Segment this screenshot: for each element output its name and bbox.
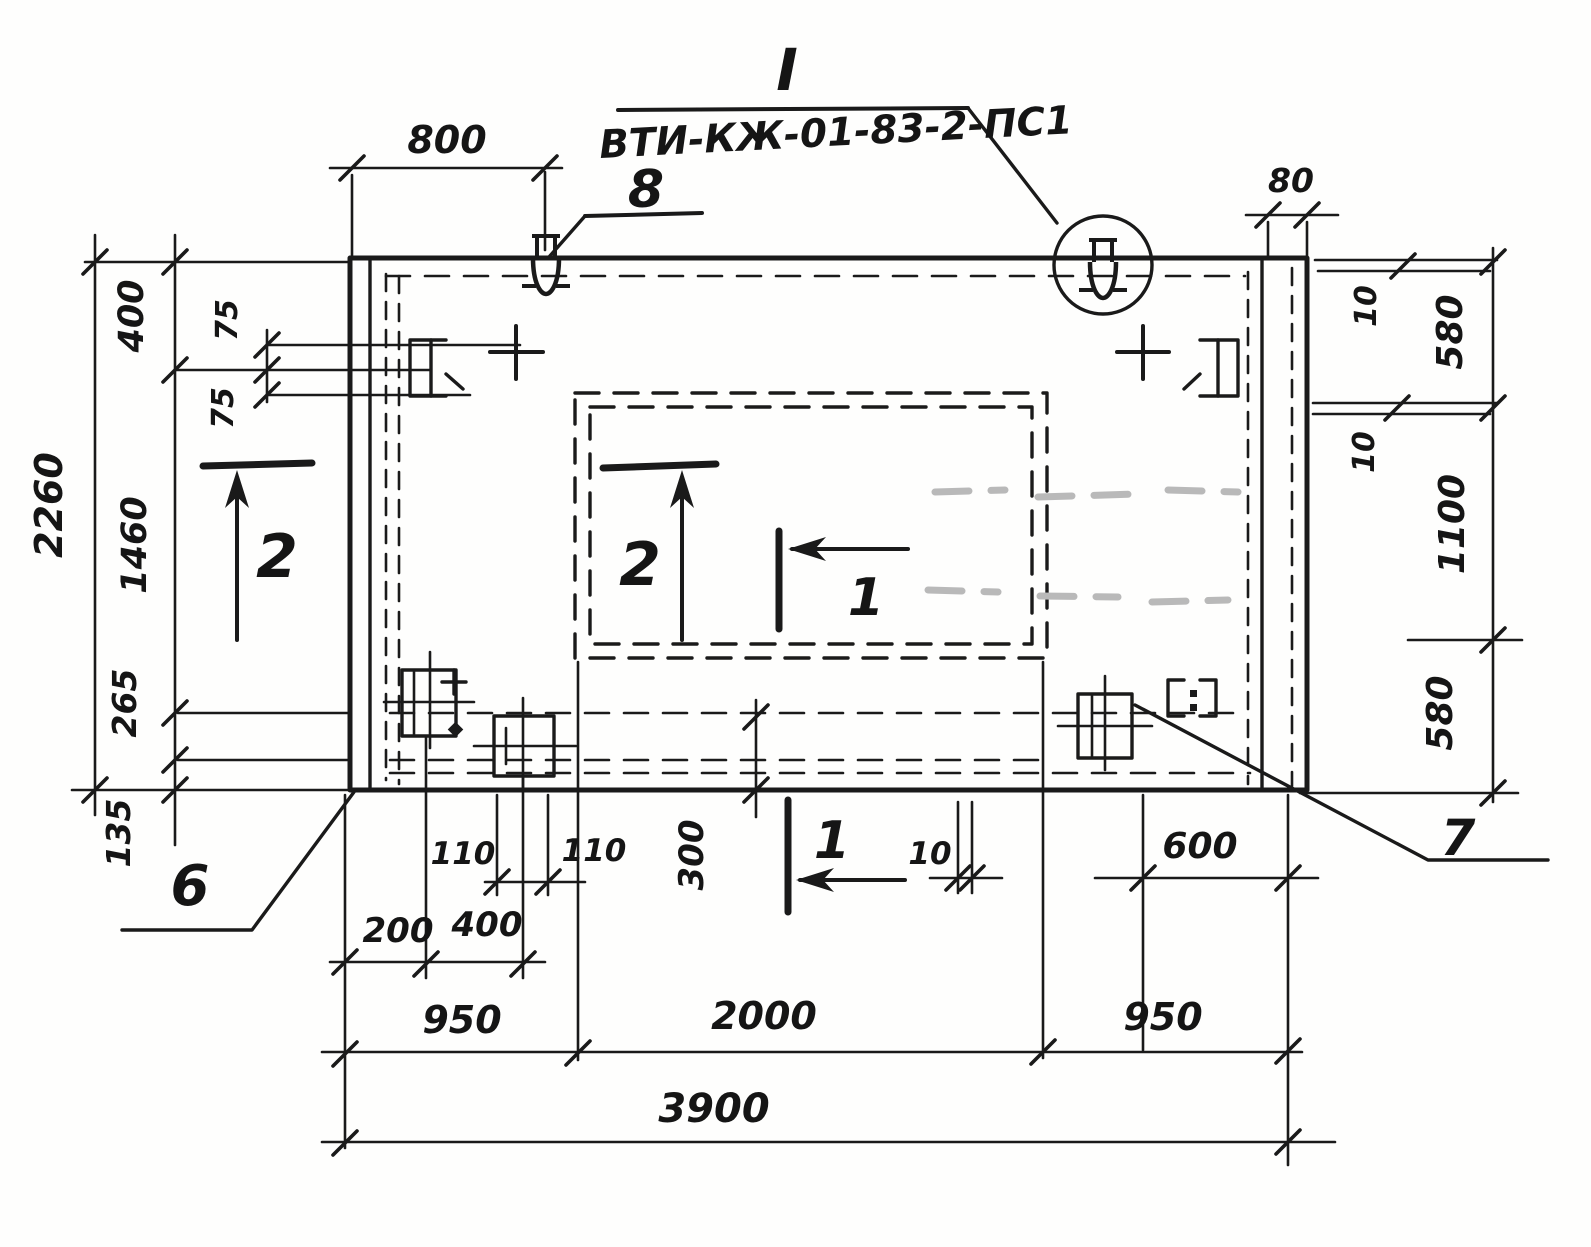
dim-top-800: 800 — [407, 118, 486, 162]
dim-bottom-110a: 110 — [431, 836, 496, 872]
dim-right-10a: 10 — [1349, 285, 1384, 327]
embed-plate-top-right — [1117, 326, 1238, 396]
embed-plate-top-left — [410, 326, 543, 396]
dim-left-1460: 1460 — [115, 496, 155, 593]
section-1-label-opening: 1 — [848, 568, 884, 628]
dim-bottom-950b: 950 — [1123, 995, 1202, 1039]
dim-left-135: 135 — [99, 799, 138, 868]
dim-bottom-950a: 950 — [422, 998, 501, 1042]
dim-left-2260: 2260 — [27, 452, 71, 558]
dim-bottom-2000: 2000 — [711, 994, 817, 1038]
item-7-label: 7 — [1441, 809, 1476, 867]
item-6-callout — [122, 792, 354, 930]
dim-right-1100: 1100 — [1432, 474, 1473, 574]
dim-bottom-300: 300 — [672, 820, 712, 891]
dim-left-400: 400 — [112, 279, 152, 353]
dim-bottom-600: 600 — [1162, 826, 1237, 867]
section-1-mark-opening — [779, 531, 908, 629]
lifting-loop-right — [1079, 238, 1127, 298]
dim-top-80: 80 — [1268, 161, 1314, 200]
dim-bottom-10: 10 — [908, 836, 951, 872]
dim-left-75a: 75 — [210, 299, 245, 341]
item-6-label: 6 — [171, 854, 210, 919]
section-2-label-left: 2 — [256, 522, 298, 592]
dim-right-10b: 10 — [1347, 431, 1382, 473]
drawing-sheet: I ВТИ-КЖ-01-83-2-ПС1 8 6 7 2 2 1 1 800 8… — [0, 0, 1591, 1247]
dim-bottom-110b: 110 — [562, 833, 627, 869]
embed-plate-bottom-right-2 — [1168, 680, 1216, 716]
faded-centerline — [928, 490, 1238, 602]
dim-bottom-200: 200 — [363, 911, 434, 951]
section-2-label-opening: 2 — [619, 530, 661, 600]
item-8-label: 8 — [628, 160, 664, 220]
dim-left-75b: 75 — [206, 387, 241, 429]
section-1-label-bottom: 1 — [814, 811, 850, 871]
dim-right-580b: 580 — [1420, 675, 1461, 750]
embed-plate-bottom-right-1 — [1058, 676, 1152, 770]
plate-axis-lines — [178, 713, 1245, 760]
dim-left-265: 265 — [105, 669, 144, 738]
panel-drawing: I ВТИ-КЖ-01-83-2-ПС1 8 6 7 2 2 1 1 800 8… — [0, 0, 1591, 1247]
opening-outline — [575, 393, 1047, 658]
item-8-callout — [549, 213, 702, 257]
embed-plate-bottom-left-1 — [384, 652, 474, 748]
dim-right-580a: 580 — [1430, 294, 1471, 369]
dim-bottom-3900: 3900 — [658, 1086, 769, 1132]
dim-bottom-400: 400 — [451, 905, 523, 945]
panel-outline — [350, 258, 1307, 790]
detail-mark-text: I — [776, 36, 798, 104]
